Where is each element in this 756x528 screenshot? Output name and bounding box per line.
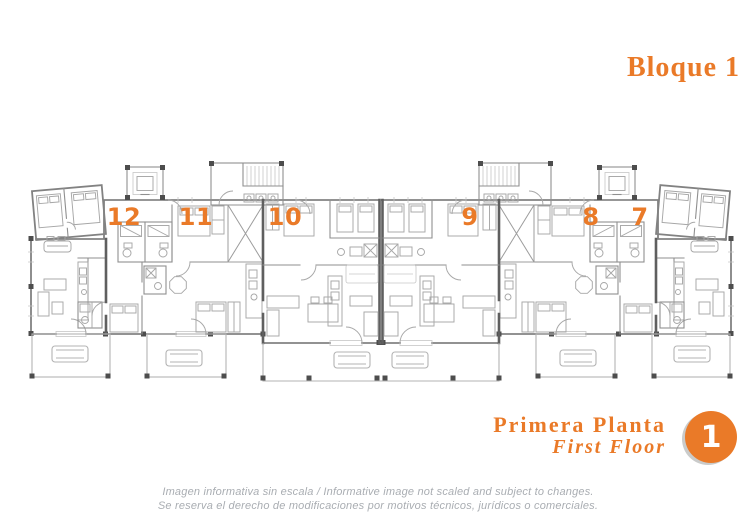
- page: Bloque 1 12 11 10 9 8 7 Primera Planta F…: [0, 0, 756, 528]
- floor-name-en: First Floor: [493, 437, 666, 459]
- block-title: Bloque 1: [627, 52, 740, 84]
- unit-label-9: 9: [461, 203, 478, 231]
- disclaimer-line-2: Se reserva el derecho de modificaciones …: [0, 500, 756, 514]
- plan-right-half-mirrored: [381, 161, 735, 381]
- unit-label-12: 12: [107, 203, 141, 231]
- unit-label-11: 11: [179, 203, 213, 231]
- floor-name: Primera Planta First Floor: [493, 413, 666, 458]
- unit-label-8: 8: [582, 203, 599, 231]
- disclaimer-line-1: Imagen informativa sin escala / Informat…: [0, 486, 756, 500]
- floor-number: 1: [701, 420, 722, 455]
- unit-label-7: 7: [631, 203, 648, 231]
- unit-label-10: 10: [268, 203, 302, 231]
- plan-left-half: [28, 161, 382, 381]
- floor-number-badge: 1: [685, 411, 737, 463]
- disclaimer: Imagen informativa sin escala / Informat…: [0, 486, 756, 513]
- floor-name-es: Primera Planta: [493, 413, 666, 437]
